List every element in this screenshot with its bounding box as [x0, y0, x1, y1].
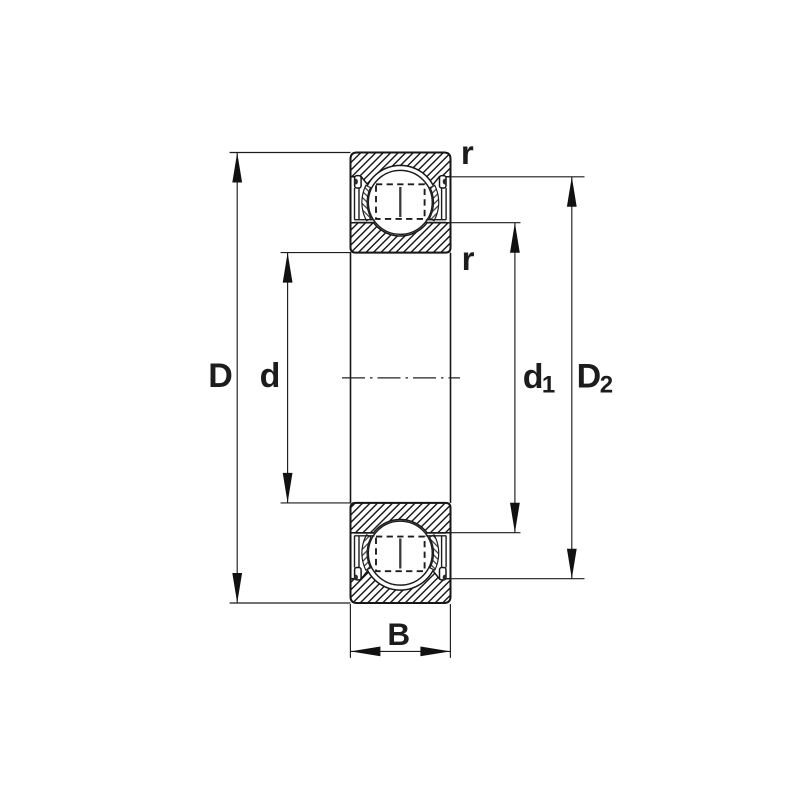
svg-text:r: r: [461, 134, 474, 171]
svg-text:D: D: [577, 357, 602, 395]
svg-text:1: 1: [542, 372, 555, 399]
svg-text:2: 2: [600, 372, 613, 399]
svg-text:r: r: [462, 240, 475, 277]
svg-text:d: d: [523, 358, 544, 396]
svg-text:d: d: [260, 357, 281, 395]
svg-text:B: B: [387, 616, 410, 652]
svg-text:D: D: [208, 357, 233, 395]
